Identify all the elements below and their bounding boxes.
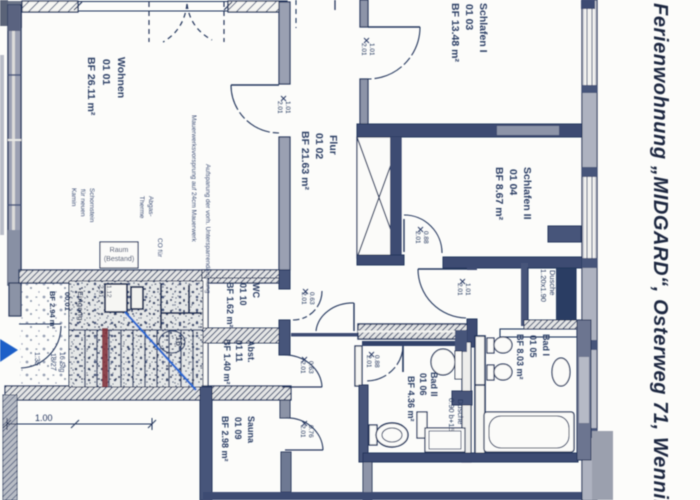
svg-text:01 03: 01 03 [463, 4, 475, 30]
svg-text:Schlafen II: Schlafen II [521, 167, 533, 220]
svg-text:1.35: 1.35 [33, 352, 40, 366]
svg-text:Wohnen: Wohnen [115, 57, 127, 98]
svg-text:BF 1.40 m²: BF 1.40 m² [222, 339, 232, 385]
svg-text:Abst.: Abst. [246, 340, 256, 363]
svg-text:1.01: 1.01 [284, 101, 291, 114]
svg-text:01 02: 01 02 [313, 133, 325, 159]
svg-text:1.01: 1.01 [368, 43, 375, 56]
svg-text:BF 8.03 m²: BF 8.03 m² [515, 334, 525, 380]
svg-text:18/27: 18/27 [49, 353, 56, 371]
svg-text:Therme: Therme [138, 196, 145, 219]
svg-text:für neuen: für neuen [79, 189, 86, 217]
svg-text:16 Stg: 16 Stg [58, 352, 65, 372]
svg-text:0.76: 0.76 [307, 425, 314, 438]
svg-text:WC: WC [251, 283, 261, 298]
svg-text:(Bestand): (Bestand) [104, 256, 134, 263]
svg-text:1.01: 1.01 [464, 283, 471, 296]
svg-text:0.63: 0.63 [308, 292, 315, 305]
svg-text:BF 21.63 m²: BF 21.63 m² [299, 131, 311, 190]
svg-text:BF 2.98 m²: BF 2.98 m² [220, 416, 230, 462]
svg-text:2.01: 2.01 [299, 425, 306, 438]
svg-text:BF 26.11 m²: BF 26.11 m² [85, 57, 97, 116]
svg-text:2.01: 2.01 [299, 361, 306, 374]
svg-text:00 01: 00 01 [63, 292, 72, 311]
svg-text:2.01: 2.01 [456, 283, 463, 296]
svg-text:Kamin: Kamin [70, 188, 77, 207]
svg-text:BF 1.62 m²: BF 1.62 m² [225, 282, 235, 328]
svg-text:Schlafen I: Schlafen I [477, 3, 489, 53]
svg-text:2.01: 2.01 [276, 101, 283, 114]
svg-text:1.20x1.90: 1.20x1.90 [539, 269, 548, 302]
svg-text:BF 2.94 m²: BF 2.94 m² [48, 291, 57, 329]
svg-text:16: 16 [174, 336, 184, 346]
svg-text:2.01: 2.01 [360, 43, 367, 56]
svg-text:01 10: 01 10 [238, 283, 248, 306]
svg-text:Flur: Flur [327, 135, 339, 155]
svg-text:2.01: 2.01 [414, 231, 421, 244]
svg-text:Aufsparung der vorh. Unterspar: Aufsparung der vorh. Untersparrendämmung [204, 164, 211, 294]
svg-text:Bad I: Bad I [541, 334, 551, 356]
svg-text:2.01: 2.01 [97, 285, 104, 298]
svg-text:Dusche: Dusche [548, 270, 557, 295]
svg-text:BF 8.67 m²: BF 8.67 m² [493, 167, 505, 221]
svg-text:BF 4.36 m²: BF 4.36 m² [406, 376, 416, 422]
svg-text:Bad II: Bad II [429, 372, 439, 397]
svg-text:Schornstein: Schornstein [88, 188, 95, 223]
svg-text:01 09: 01 09 [233, 417, 243, 440]
svg-text:0.63: 0.63 [307, 361, 314, 374]
svg-text:01 06: 01 06 [418, 373, 428, 396]
svg-text:Mauerwerksvorsprung auf 24cm M: Mauerwerksvorsprung auf 24cm Mauerwerk [190, 115, 197, 243]
svg-text:Sauna: Sauna [246, 416, 256, 444]
svg-text:Ferienwohnung „MIDGARD“, Oster: Ferienwohnung „MIDGARD“, Osterweg 71, We… [649, 3, 671, 500]
svg-text:0.88: 0.88 [422, 231, 429, 244]
svg-text:Raum: Raum [110, 247, 129, 254]
svg-text:0.90 b+15: 0.90 b+15 [447, 398, 456, 432]
svg-text:BF 13.48 m²: BF 13.48 m² [449, 3, 461, 62]
svg-text:1.12: 1.12 [105, 285, 112, 298]
svg-text:Dusche: Dusche [456, 399, 465, 424]
svg-text:Eingang: Eingang [76, 291, 85, 321]
svg-text:0.88: 0.88 [373, 355, 380, 368]
svg-text:01 01: 01 01 [100, 59, 112, 85]
svg-text:CO für: CO für [156, 238, 163, 258]
svg-text:Abgas-: Abgas- [147, 196, 154, 217]
svg-text:01 11: 01 11 [234, 340, 244, 362]
svg-text:1.00: 1.00 [35, 413, 53, 423]
svg-text:01 04: 01 04 [507, 169, 519, 195]
svg-text:01 05: 01 05 [528, 335, 538, 358]
svg-text:2.01: 2.01 [365, 355, 372, 368]
